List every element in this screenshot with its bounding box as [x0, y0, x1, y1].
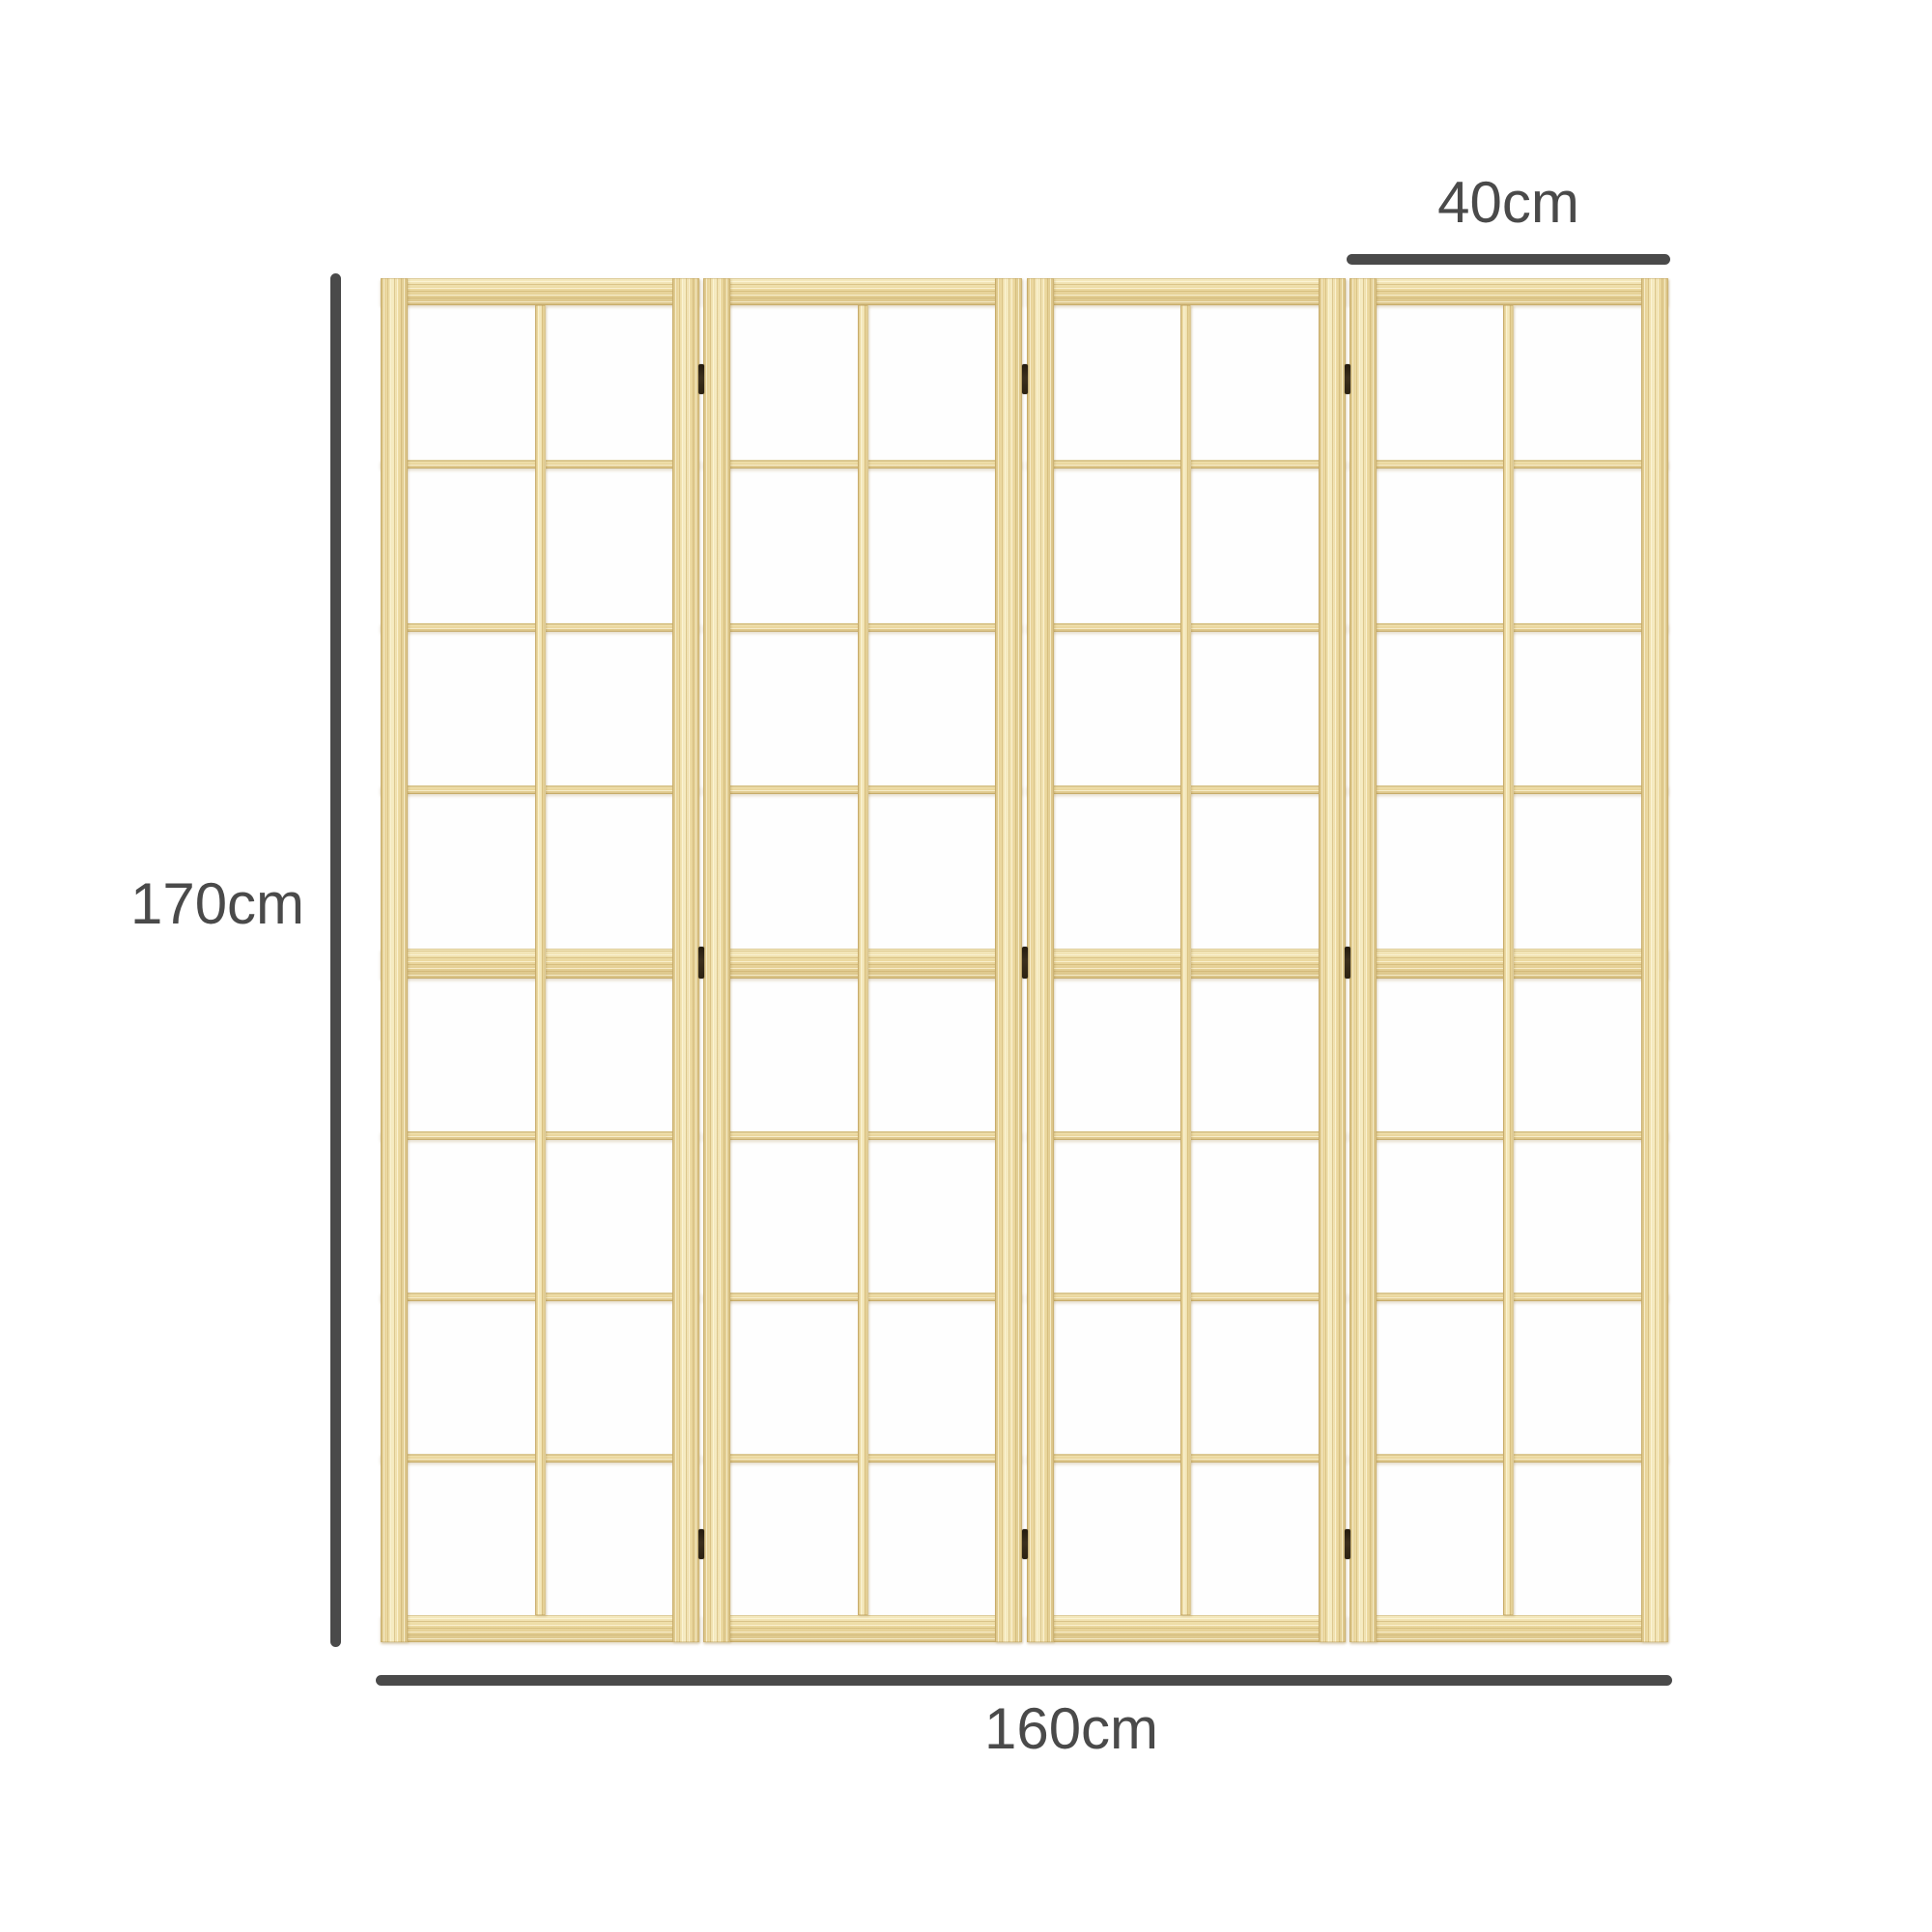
panel-right-stile: [1641, 278, 1668, 1642]
panel-width-dimension-label: 40cm: [1347, 174, 1670, 232]
hinge: [1345, 947, 1350, 979]
total-width-dimension-label: 160cm: [912, 1700, 1231, 1758]
panel-right-stile: [1319, 278, 1346, 1642]
hinge: [1345, 364, 1350, 394]
hinge: [1022, 364, 1028, 394]
hinge: [1345, 1529, 1350, 1559]
hinge: [698, 364, 704, 394]
hinge: [698, 1529, 704, 1559]
divider-panel: [1350, 278, 1668, 1642]
hinge: [698, 947, 704, 979]
divider-panel: [381, 278, 699, 1642]
panel-mullion-vertical: [858, 305, 868, 1615]
room-divider: [381, 278, 1668, 1642]
panel-bottom-rail: [381, 1615, 699, 1642]
panel-right-stile: [995, 278, 1022, 1642]
panel-right-stile: [672, 278, 699, 1642]
panel-left-stile: [1350, 278, 1377, 1642]
panel-left-stile: [703, 278, 730, 1642]
panel-mullion-vertical: [1180, 305, 1191, 1615]
panel-top-rail: [1350, 278, 1668, 305]
panel-mullion-vertical: [1503, 305, 1514, 1615]
product-dimension-diagram: 170cm 40cm 160cm: [0, 0, 1932, 1932]
height-dimension-line: [330, 273, 341, 1647]
hinge: [1022, 947, 1028, 979]
divider-panel: [703, 278, 1022, 1642]
panel-bottom-rail: [1350, 1615, 1668, 1642]
panel-top-rail: [1027, 278, 1346, 305]
panel-left-stile: [381, 278, 408, 1642]
total-width-dimension-line: [376, 1675, 1672, 1686]
panel-bottom-rail: [1027, 1615, 1346, 1642]
panel-top-rail: [381, 278, 699, 305]
hinge: [1022, 1529, 1028, 1559]
divider-panel: [1027, 278, 1346, 1642]
panel-width-dimension-line: [1347, 254, 1670, 265]
panel-top-rail: [703, 278, 1022, 305]
panel-mullion-vertical: [535, 305, 546, 1615]
panel-left-stile: [1027, 278, 1054, 1642]
panel-bottom-rail: [703, 1615, 1022, 1642]
height-dimension-label: 170cm: [106, 875, 328, 933]
